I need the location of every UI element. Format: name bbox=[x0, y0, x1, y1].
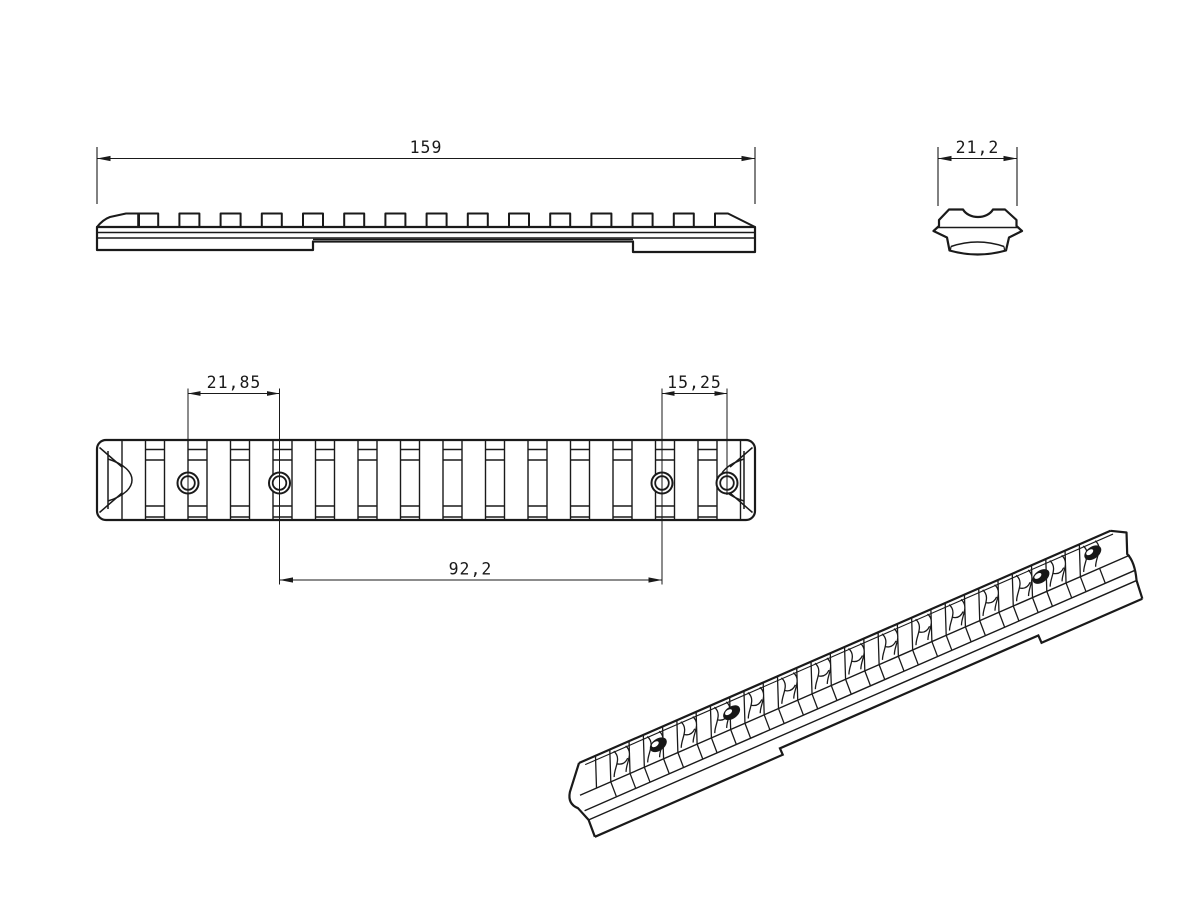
side-view: 159 bbox=[97, 138, 755, 252]
iso-flange-edge bbox=[585, 571, 1135, 811]
dimension-hole-spacing-right: 15,25 bbox=[662, 373, 727, 396]
top-view: 21,85 15,25 92,2 bbox=[97, 373, 755, 585]
end-view-outline bbox=[934, 210, 1023, 255]
iso-screw-hole bbox=[648, 735, 669, 754]
end-view-arc-ticks bbox=[950, 247, 1004, 251]
iso-screw-holes bbox=[645, 542, 1105, 755]
dim-label-hole-span-center: 92,2 bbox=[449, 560, 493, 579]
dim-label-hole-spacing-left: 21,85 bbox=[207, 373, 262, 392]
drawing-page: 159 21,2 bbox=[0, 0, 1200, 900]
end-view-bottom-arc bbox=[951, 242, 1004, 247]
dimension-hole-spacing-left: 21,85 bbox=[188, 373, 280, 396]
top-view-screw-holes bbox=[178, 473, 738, 494]
dim-label-overall-width: 21,2 bbox=[956, 138, 1000, 157]
technical-drawing-canvas: 159 21,2 bbox=[0, 0, 1200, 900]
isometric-view bbox=[558, 525, 1154, 841]
end-view: 21,2 bbox=[934, 138, 1023, 255]
arrowhead-right bbox=[649, 577, 663, 582]
side-view-teeth bbox=[97, 214, 755, 228]
arrowhead-right bbox=[742, 156, 756, 161]
iso-screw-hole bbox=[1030, 567, 1051, 586]
dim-label-overall-length: 159 bbox=[410, 138, 443, 157]
dimension-overall-width: 21,2 bbox=[938, 138, 1017, 206]
dimension-overall-length: 159 bbox=[97, 138, 755, 204]
dimension-hole-span-center: 92,2 bbox=[280, 560, 663, 583]
arrowhead-left bbox=[97, 156, 111, 161]
arrowhead-right bbox=[267, 391, 280, 396]
iso-left-end bbox=[558, 763, 609, 840]
arrowhead-left bbox=[280, 577, 294, 582]
iso-bottom-edge bbox=[592, 591, 1142, 837]
arrowhead-right bbox=[1004, 156, 1018, 161]
arrowhead-left bbox=[188, 391, 201, 396]
iso-base-top-edge bbox=[588, 580, 1137, 820]
arrowhead-left bbox=[938, 156, 952, 161]
iso-back-edge bbox=[579, 531, 1110, 763]
top-view-left-end-detail bbox=[100, 448, 133, 513]
dim-label-hole-spacing-right: 15,25 bbox=[667, 373, 722, 392]
top-view-slot-pattern bbox=[122, 441, 741, 519]
